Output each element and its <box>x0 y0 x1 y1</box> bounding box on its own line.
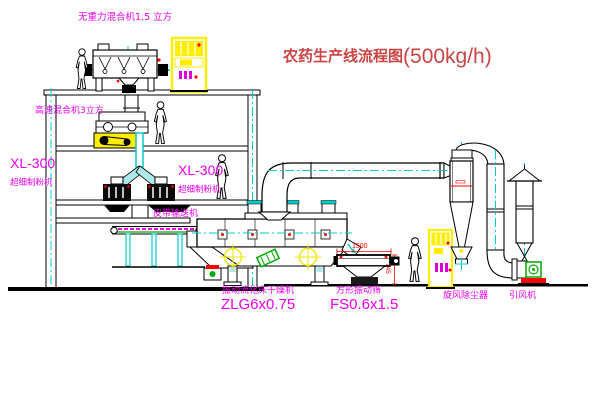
page-title: 农药生产线流程图(500kg/h) <box>283 46 492 67</box>
label-cyclone: 旋风除尘器 <box>443 292 488 301</box>
label-sieve-name: 方形振动筛 <box>336 287 381 296</box>
control-cabinet-right <box>426 230 455 289</box>
high-speed-mixer <box>94 95 163 188</box>
gravity-mixer <box>83 44 170 93</box>
person-figure-floor2 <box>154 102 166 144</box>
label-high-speed-mixer: 高速混合机3立方 <box>35 107 104 116</box>
label-sieve-model: FS0.6x1.5 <box>330 297 398 312</box>
flow-diagram: 农药生产线流程图(500kg/h) 无重力混合机1.5 立方 高速混合机3立方 … <box>0 0 600 403</box>
label-gravity-mixer: 无重力混合机1.5 立方 <box>78 13 172 23</box>
label-mill-left-name: 超细制粉机 <box>10 179 53 188</box>
dryer-nozzles <box>247 201 336 214</box>
label-dryer-model: ZLG6x0.75 <box>221 297 295 312</box>
control-cabinet-top <box>170 38 208 92</box>
ground-line <box>8 284 588 291</box>
label-belt-conveyor: 皮带输送机 <box>153 210 198 219</box>
dimension-sieve-height: 745 <box>384 263 391 274</box>
downcomer-pipe <box>487 150 514 278</box>
label-dryer-name: 振动流化床干燥机 <box>222 287 294 296</box>
label-fan: 引风机 <box>509 292 536 301</box>
person-figure-ground <box>409 238 422 282</box>
label-mill-left-model: XL-300 <box>10 156 55 170</box>
title-text: 农药生产线流程图 <box>283 47 403 65</box>
label-mill-right-name: 超细制粉机 <box>178 186 221 195</box>
induced-draft-fan <box>512 259 549 286</box>
title-capacity: (500kg/h) <box>403 45 492 68</box>
dimension-sieve-width: 1500 <box>352 243 368 250</box>
label-mill-right-model: XL-300 <box>178 163 223 177</box>
